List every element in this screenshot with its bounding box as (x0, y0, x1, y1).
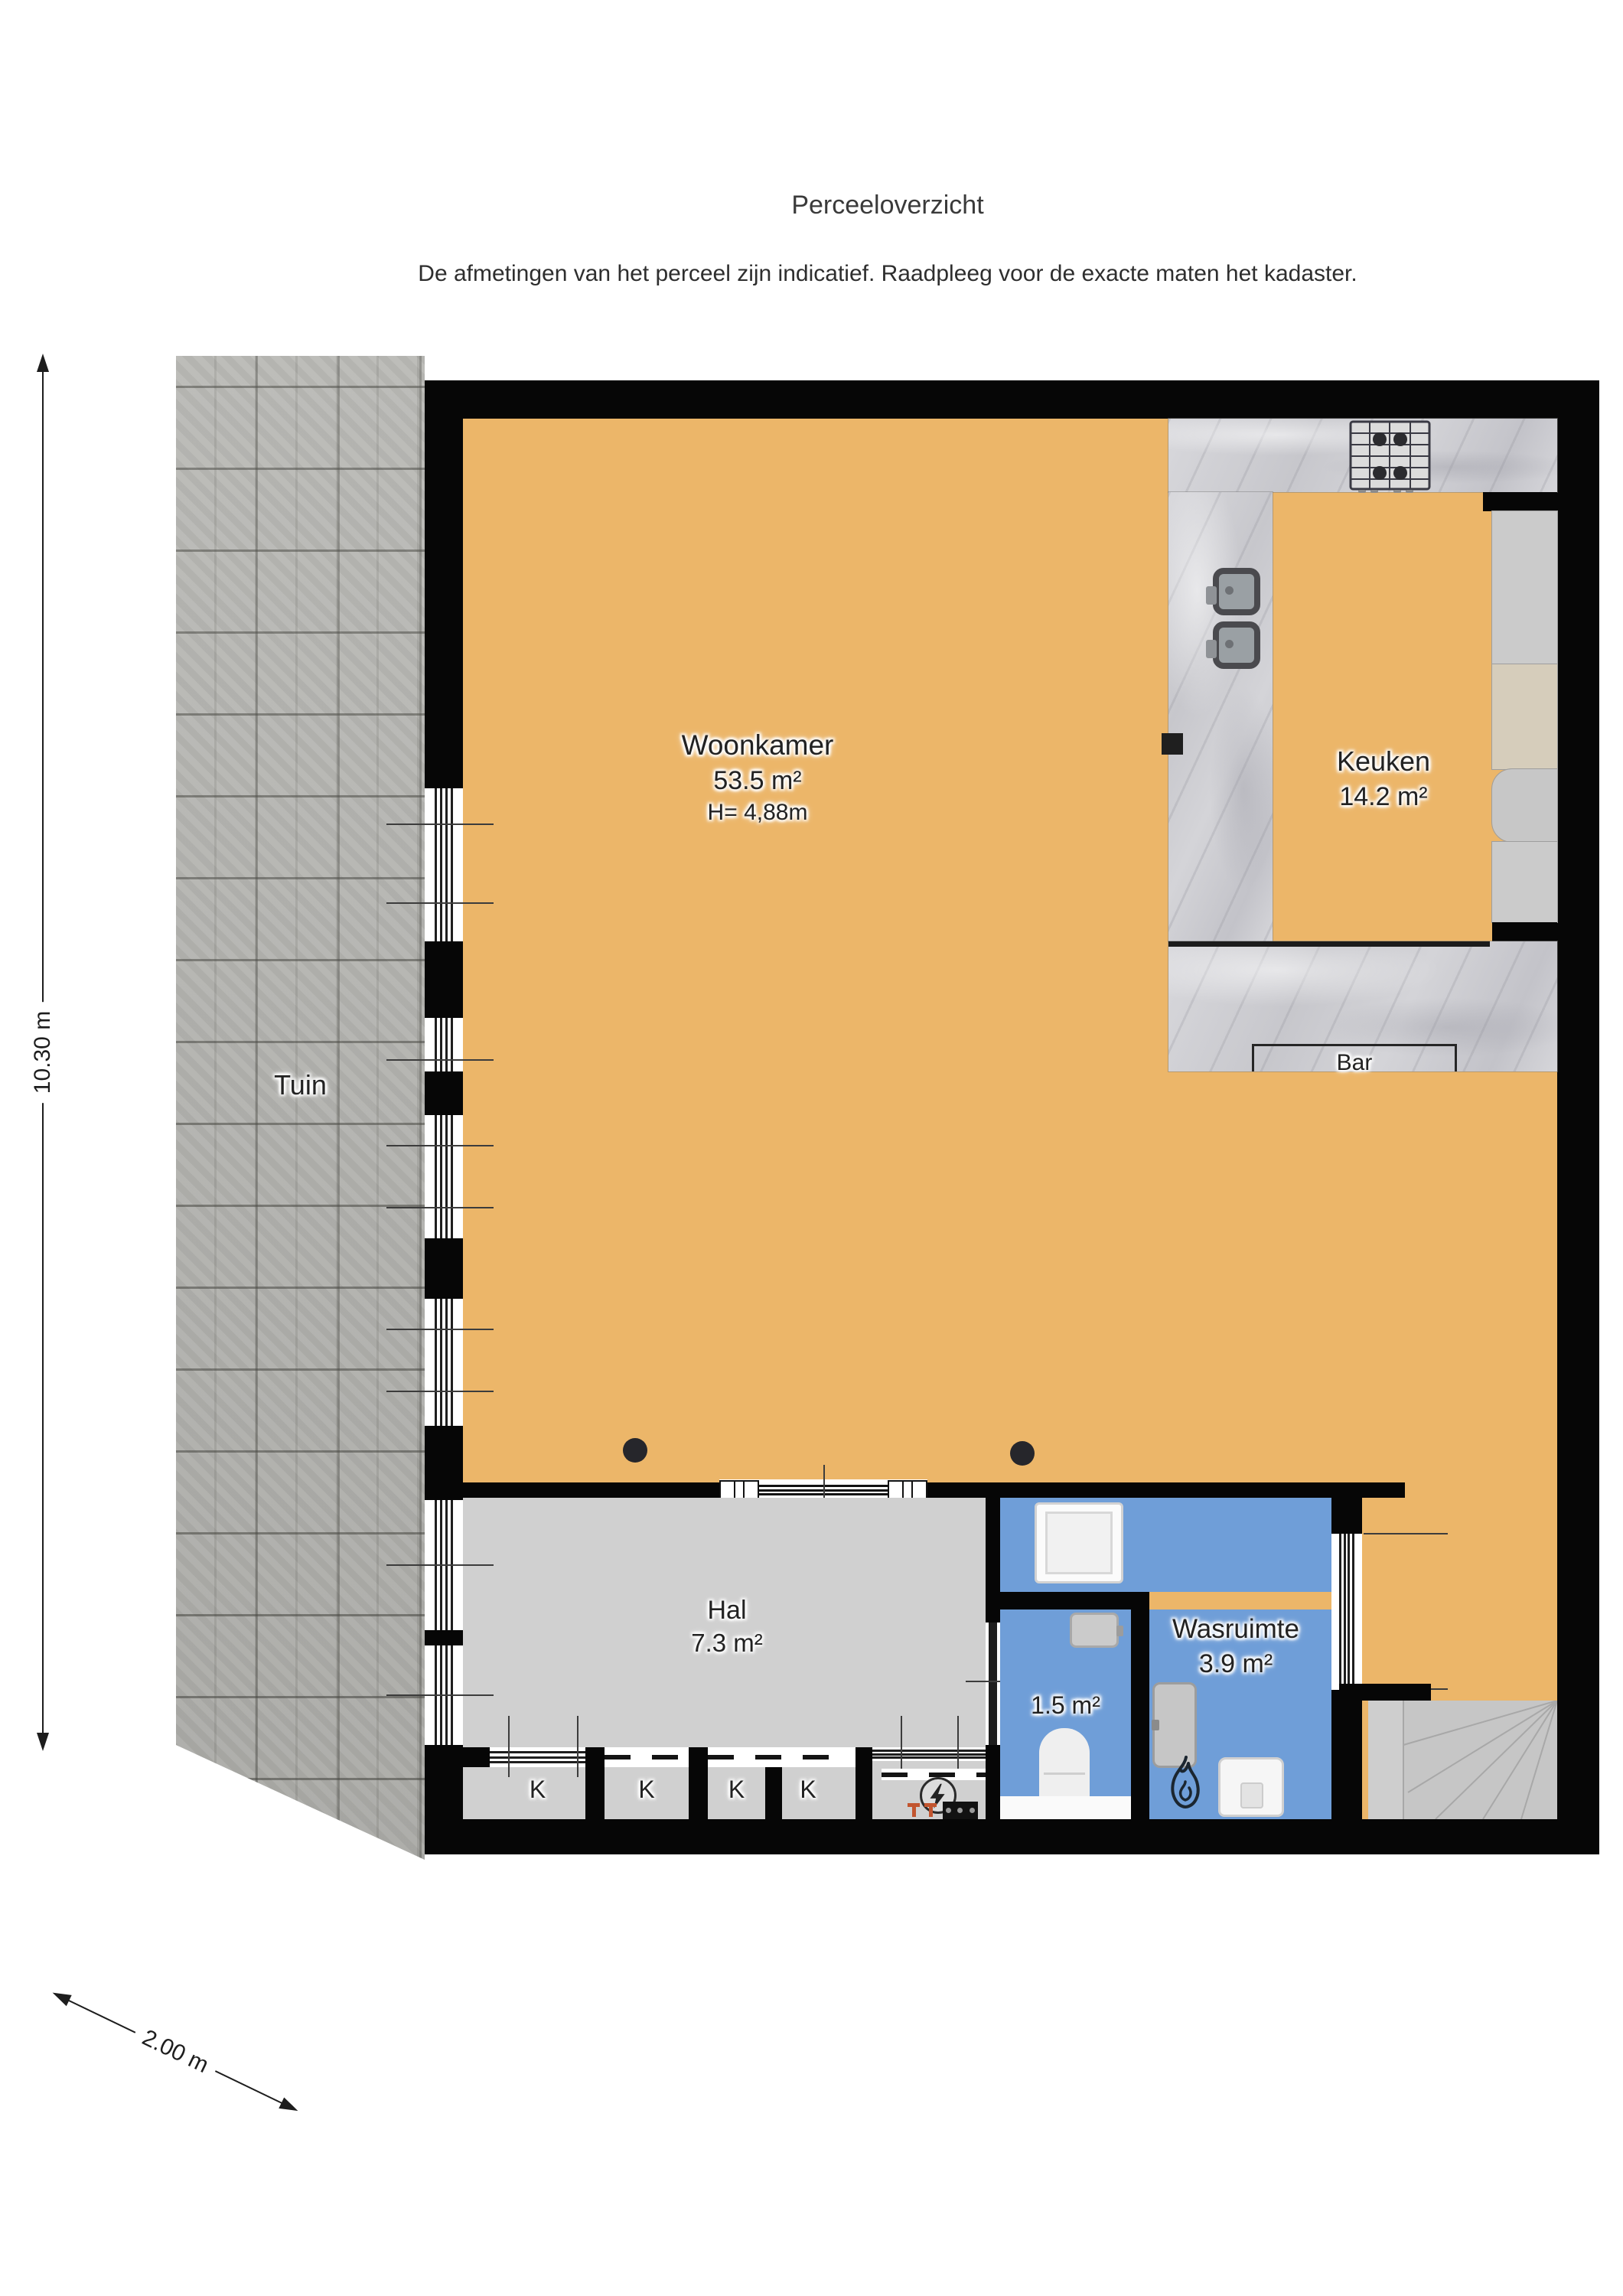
room-area: 3.9 m² (1140, 1647, 1331, 1681)
closet-window (490, 1747, 585, 1767)
window-tick (901, 1716, 902, 1776)
meter-cupboard-window (872, 1747, 986, 1761)
closet-label: K (708, 1774, 765, 1806)
facade-window (425, 788, 463, 941)
hall-toilet-window (986, 1623, 1000, 1745)
facade-window (425, 1299, 463, 1426)
garden-area: Tuin (176, 356, 425, 1860)
window-tick (386, 1207, 494, 1208)
bar-label: Bar (1254, 1048, 1455, 1078)
stair-wall-stub (1339, 1684, 1431, 1701)
laundry-right-wall (1331, 1498, 1362, 1534)
room-name: Hal (578, 1593, 876, 1627)
closet-divider (855, 1747, 872, 1819)
page-subtitle: De afmetingen van het perceel zijn indic… (84, 259, 1623, 289)
facade-window (425, 1115, 463, 1238)
width-dimension-label: 2.00 m (129, 2018, 222, 2086)
closet-label: K (490, 1774, 585, 1806)
kitchen-cabinet (1492, 511, 1557, 664)
toilet-counter (1000, 1796, 1131, 1819)
closet-door-dashed (708, 1747, 834, 1767)
window-tick (957, 1716, 959, 1776)
room-name: Wasruimte (1140, 1612, 1331, 1647)
bar-outline: Bar (1252, 1044, 1457, 1071)
kitchen-label: Keuken 14.2 m² (1273, 744, 1494, 814)
radiator-icon (924, 1803, 937, 1807)
laundry-window (1331, 1534, 1362, 1690)
closet-opening (834, 1747, 855, 1767)
window-tick (1364, 1533, 1448, 1534)
room-name: Keuken (1273, 744, 1494, 780)
laundry-toilet-wall (1000, 1592, 1149, 1609)
fuse-box-icon (943, 1802, 978, 1819)
kitchen-wall-stub-top (1483, 492, 1557, 511)
closet-divider (689, 1747, 708, 1819)
closet-label: K (605, 1774, 689, 1806)
closet-wall (463, 1747, 490, 1767)
closet-door-dashed (605, 1747, 689, 1767)
boiler-icon (1218, 1757, 1284, 1817)
room-area: 7.3 m² (578, 1627, 876, 1660)
radiator-icon (908, 1803, 920, 1807)
floor-outlet-marker (1162, 733, 1183, 755)
kitchen-wall-stub-bottom (1492, 922, 1557, 941)
washer-door (1045, 1512, 1113, 1574)
stove-icon (1349, 420, 1431, 494)
flame-icon (1160, 1753, 1211, 1812)
laundry-label: Wasruimte 3.9 m² (1140, 1612, 1331, 1681)
hand-basin-icon (1070, 1613, 1119, 1648)
kitchen-cabinet (1492, 842, 1557, 922)
washing-machine-icon (1035, 1502, 1123, 1583)
window-tick (386, 823, 494, 825)
staircase-icon (1368, 1701, 1557, 1819)
page-title: Perceeloverzicht (275, 188, 1500, 222)
kitchen-sink-icon (1213, 621, 1260, 669)
height-dimension-label: 10.30 m (27, 1002, 59, 1103)
window-tick (386, 1564, 494, 1566)
toilet-icon (1039, 1728, 1090, 1805)
hall-label: Hal 7.3 m² (578, 1593, 876, 1660)
window-tick (577, 1716, 578, 1777)
floorplan-page: Perceeloverzicht De afmetingen van het p… (0, 0, 1623, 2296)
facade-window (425, 1018, 463, 1071)
laundry-right-wall (1331, 1690, 1362, 1819)
closet-divider (585, 1747, 605, 1819)
toilet-label: 1.5 m² (1000, 1690, 1131, 1722)
window-tick (386, 1145, 494, 1146)
closet-label: K (782, 1774, 834, 1806)
window-tick (508, 1716, 510, 1777)
garden-label: Tuin (176, 1068, 425, 1104)
living-room-label: Woonkamer 53.5 m² H= 4,88m (605, 727, 911, 827)
closet-divider (765, 1767, 782, 1819)
kitchen-cabinet (1492, 664, 1557, 769)
room-name: Woonkamer (605, 727, 911, 764)
window-tick (386, 1694, 494, 1696)
window-tick (386, 1391, 494, 1392)
kitchen-counter-left (1168, 492, 1273, 941)
room-area: 53.5 m² (605, 764, 911, 797)
room-ceiling-height: H= 4,88m (605, 797, 911, 827)
window-tick (386, 902, 494, 904)
window-tick (386, 1329, 494, 1330)
bar-counter-edge (1168, 941, 1490, 947)
window-tick (386, 1059, 494, 1061)
living-hall-wall (463, 1482, 1405, 1498)
room-area: 14.2 m² (1273, 780, 1494, 814)
hall-toilet-wall (986, 1498, 1000, 1623)
column-post (623, 1438, 647, 1463)
kitchen-sink-icon (1213, 568, 1260, 615)
width-dimension: 2.00 m (35, 1984, 303, 2144)
refrigerator (1492, 769, 1557, 842)
height-dimension: 10.30 m (28, 352, 58, 1753)
column-post (1010, 1441, 1035, 1466)
hall-toilet-wall (986, 1745, 1000, 1819)
